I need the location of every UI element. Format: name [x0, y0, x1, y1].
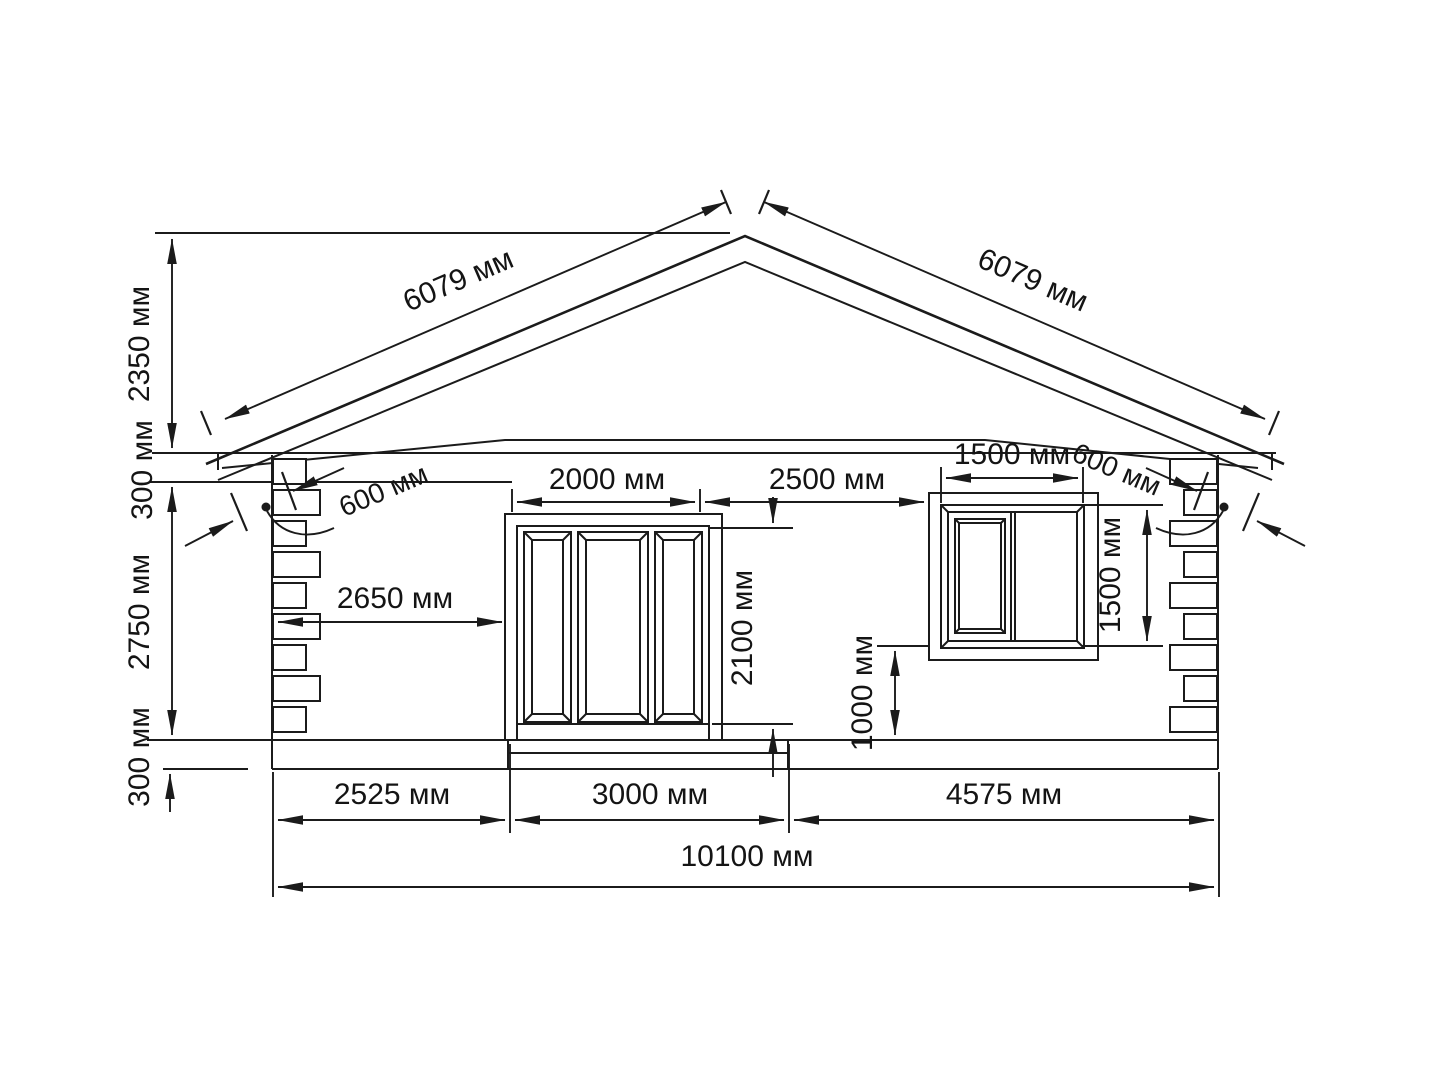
dim-label-plinth: 300 мм — [123, 707, 156, 807]
dim-label-door-width: 2000 мм — [549, 463, 665, 496]
dim-label-total-width: 10100 мм — [680, 840, 813, 873]
dim-label-sill-height: 1000 мм — [846, 635, 879, 751]
dim-label-segment-right: 4575 мм — [946, 778, 1062, 811]
dim-label-door-to-window: 2500 мм — [769, 463, 885, 496]
dim-label-segment-door: 3000 мм — [592, 778, 708, 811]
dim-label-wall-height: 2750 мм — [123, 554, 156, 670]
dim-label-window-width: 1500 мм — [954, 438, 1070, 471]
leader-dot — [262, 503, 271, 512]
elevation-canvas: 2350 мм 300 мм 2750 мм 300 мм 6079 мм 60… — [0, 0, 1440, 1080]
dim-label-wall-to-door: 2650 мм — [337, 582, 453, 615]
dim-label-eave-band: 300 мм — [126, 420, 159, 520]
leader-dot — [1220, 503, 1229, 512]
dim-label-gable-height: 2350 мм — [123, 286, 156, 402]
paper-background — [0, 0, 1440, 1080]
dim-label-door-height: 2100 мм — [726, 570, 759, 686]
dim-label-window-height: 1500 мм — [1094, 517, 1127, 633]
house-elevation-drawing: 2350 мм 300 мм 2750 мм 300 мм 6079 мм 60… — [0, 0, 1440, 1080]
dim-label-segment-left: 2525 мм — [334, 778, 450, 811]
